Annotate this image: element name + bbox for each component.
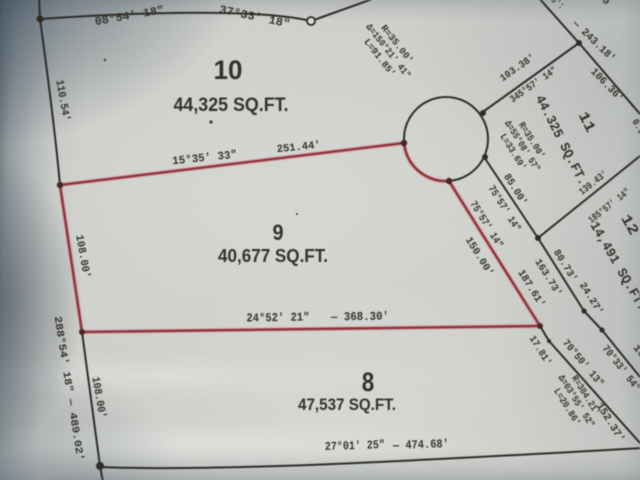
- svg-text:9: 9: [273, 220, 284, 245]
- svg-text:24°52' 21": 24°52' 21": [246, 310, 309, 325]
- svg-text:24.27': 24.27': [576, 280, 605, 317]
- svg-text:110.54': 110.54': [52, 79, 71, 122]
- svg-text:44,325 SQ.FT.: 44,325 SQ.FT.: [174, 95, 289, 116]
- svg-text:— 474.68': — 474.68': [392, 437, 449, 453]
- svg-text:106.36': 106.36': [588, 66, 626, 105]
- svg-text:0.5: 0.5: [629, 118, 640, 137]
- svg-text:12: 12: [616, 212, 640, 239]
- svg-text:288°54' 18" — 489.02': 288°54' 18" — 489.02': [51, 316, 86, 462]
- svg-text:— 368.30': — 368.30': [330, 309, 389, 324]
- svg-text:10: 10: [214, 55, 243, 85]
- svg-text:8: 8: [362, 367, 375, 397]
- svg-text:44.325 SQ.FT.: 44.325 SQ.FT.: [531, 93, 589, 188]
- svg-text:10: 10: [630, 343, 640, 361]
- svg-text:11: 11: [574, 109, 599, 135]
- svg-text:17.81': 17.81': [526, 334, 554, 368]
- svg-text:0: 0: [599, 0, 611, 8]
- svg-text:27°01' 25": 27°01' 25": [325, 438, 385, 454]
- svg-text:37°33' 18": 37°33' 18": [218, 4, 291, 32]
- svg-text:40,677 SQ.FT.: 40,677 SQ.FT.: [218, 246, 328, 266]
- svg-text:08°54' 18": 08°54' 18": [94, 4, 165, 29]
- svg-text:47,537 SQ.FT.: 47,537 SQ.FT.: [298, 395, 396, 414]
